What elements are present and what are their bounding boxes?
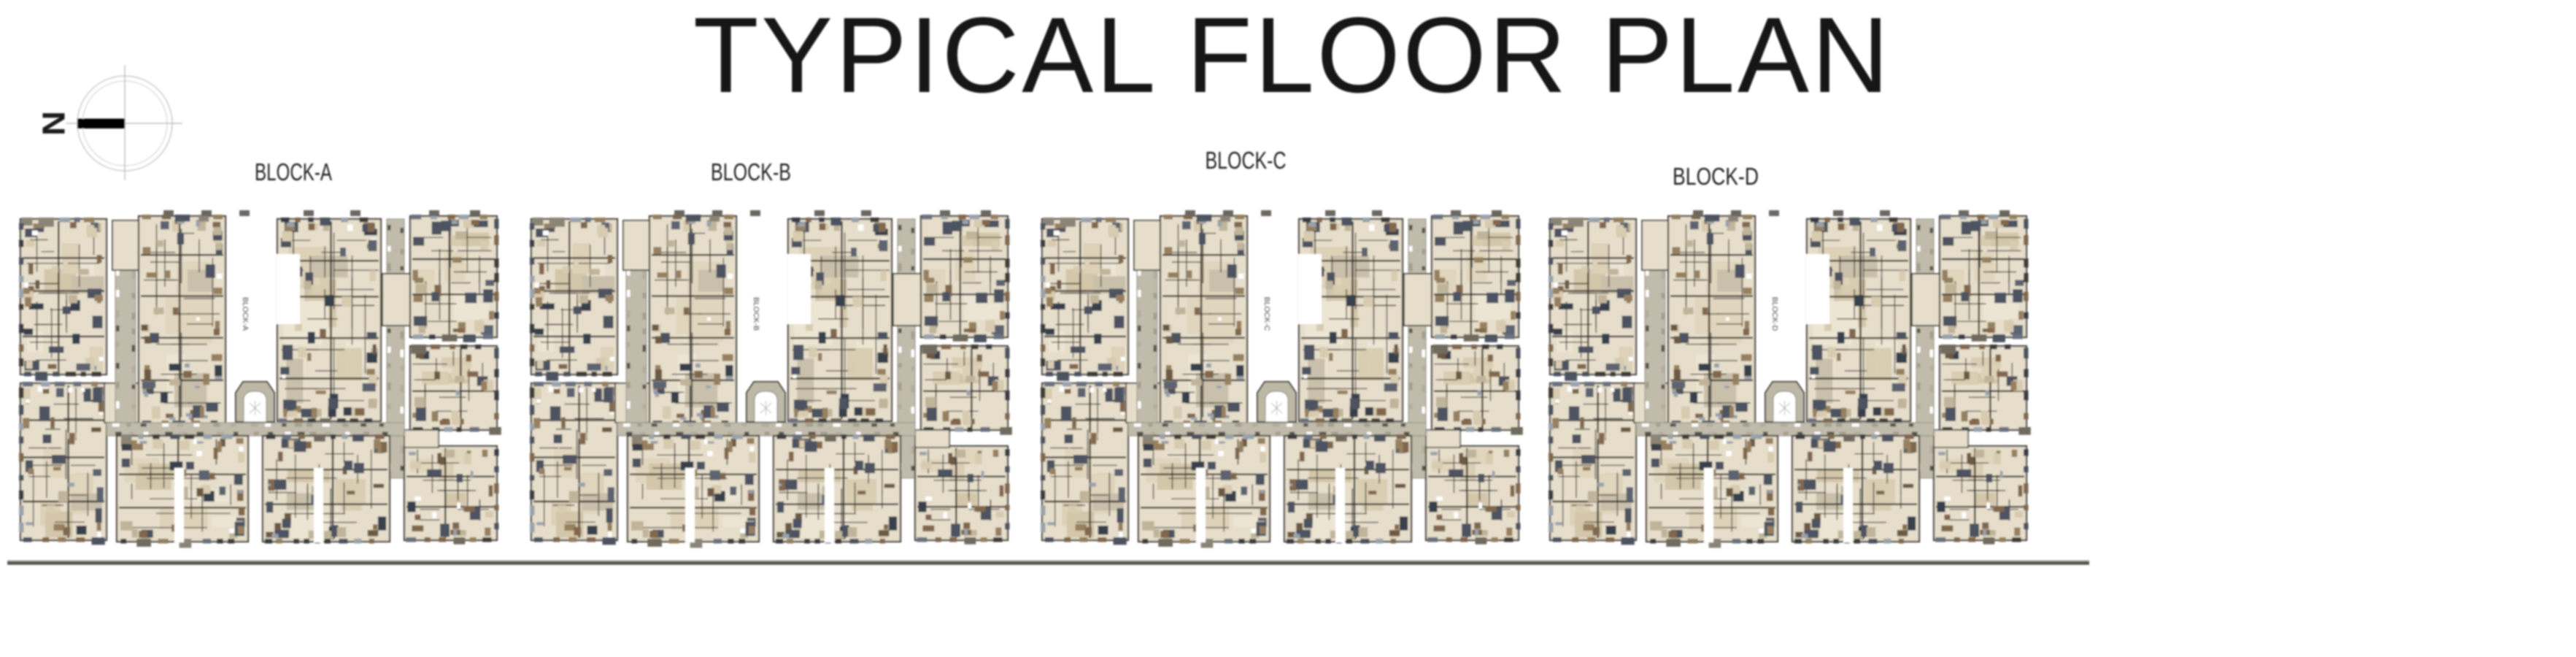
svg-text:BLOCK-A: BLOCK-A	[255, 158, 332, 185]
svg-text:BLOCK-C: BLOCK-C	[1262, 297, 1271, 331]
svg-text:BLOCK-C: BLOCK-C	[1206, 147, 1287, 174]
svg-text:BLOCK-D: BLOCK-D	[1770, 297, 1779, 331]
svg-text:BLOCK-D: BLOCK-D	[1673, 163, 1759, 190]
svg-text:BLOCK-A: BLOCK-A	[241, 297, 250, 331]
svg-text:BLOCK-B: BLOCK-B	[711, 158, 791, 185]
svg-text:BLOCK-B: BLOCK-B	[752, 297, 760, 331]
svg-text:N: N	[36, 111, 72, 136]
svg-text:TYPICAL FLOOR PLAN: TYPICAL FLOOR PLAN	[693, 0, 1891, 115]
